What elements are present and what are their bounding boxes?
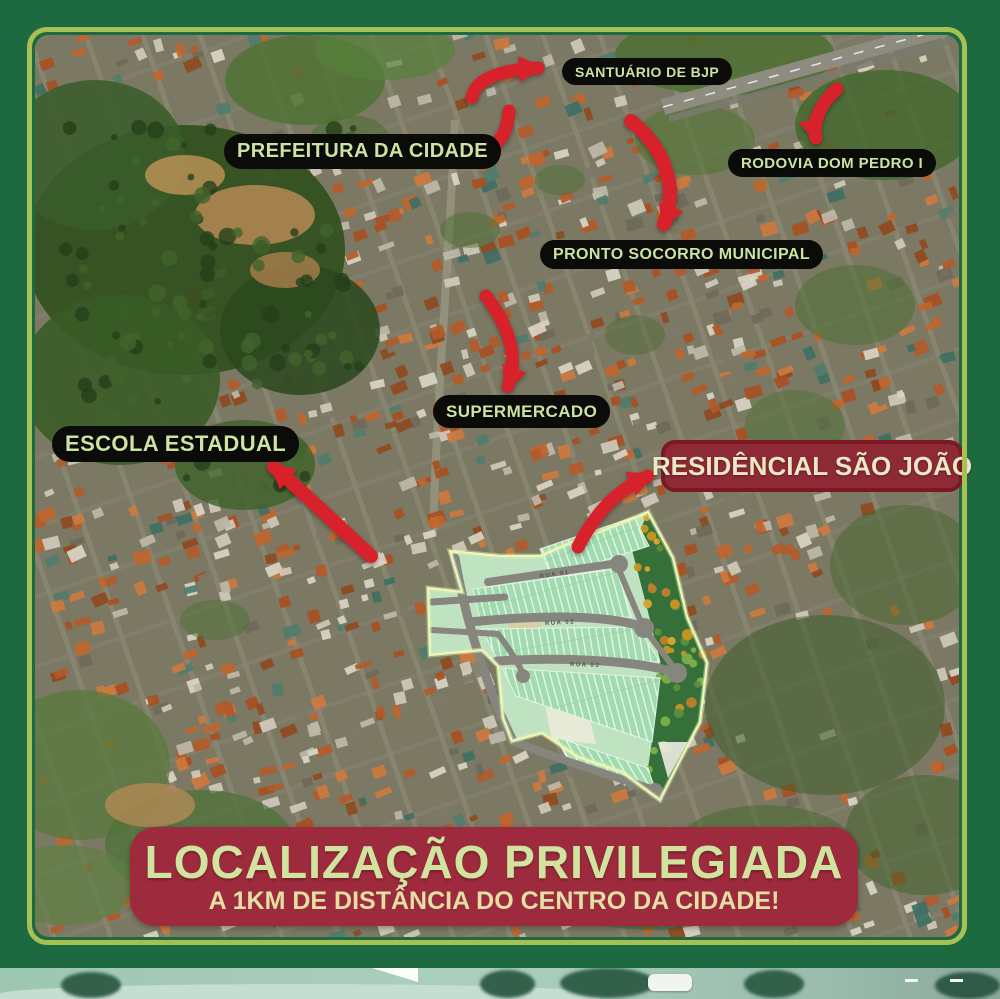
- label-santuario: SANTUÁRIO DE BJP: [562, 58, 732, 85]
- tree-blob: [560, 968, 655, 998]
- label-escola: ESCOLA ESTADUAL: [52, 426, 299, 462]
- tree-blob: [935, 972, 1000, 999]
- white-roof-wedge: [372, 968, 418, 982]
- label-supermercado: SUPERMERCADO: [433, 395, 610, 428]
- lane-marking: [905, 979, 918, 982]
- label-pronto-socorro: PRONTO SOCORRO MUNICIPAL: [540, 240, 823, 269]
- white-car: [648, 974, 692, 991]
- label-rodovia: RODOVIA DOM PEDRO I: [728, 149, 936, 177]
- flyer-page: { "map_labels": [ {"id": "santuario", "t…: [0, 0, 1000, 999]
- street-dot: [497, 985, 503, 990]
- tree-blob: [61, 972, 121, 998]
- next-image-strip: [0, 968, 1000, 999]
- banner-subtitle: A 1KM DE DISTÂNCIA DO CENTRO DA CIDADE!: [209, 889, 780, 914]
- label-prefeitura: PREFEITURA DA CIDADE: [224, 134, 501, 169]
- headline-banner: LOCALIZAÇÃO PRIVILEGIADA A 1KM DE DISTÂN…: [130, 827, 858, 926]
- banner-title: LOCALIZAÇÃO PRIVILEGIADA: [145, 839, 844, 885]
- project-name-badge: RESIDÊNCIAL SÃO JOÃO: [661, 440, 963, 492]
- lane-marking: [950, 979, 963, 982]
- tree-blob: [744, 970, 804, 998]
- tree-blob: [480, 970, 535, 998]
